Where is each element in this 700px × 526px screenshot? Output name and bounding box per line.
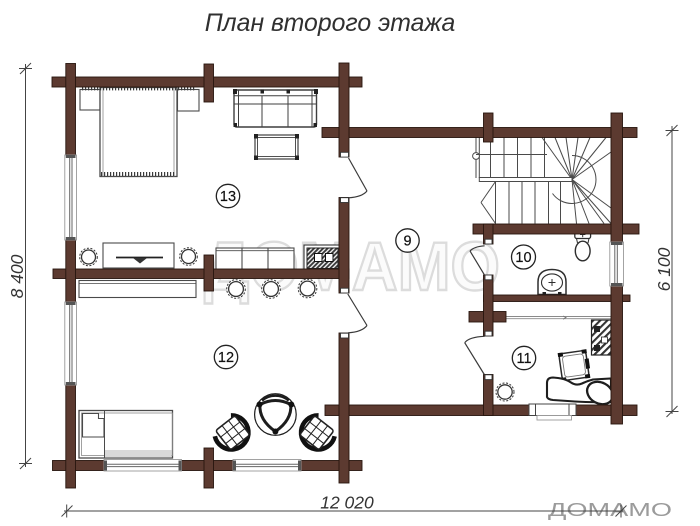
svg-text:12: 12 [218,350,234,366]
svg-text:9: 9 [403,234,411,250]
svg-text:12 020: 12 020 [320,493,374,513]
svg-text:ДОМАМО: ДОМАМО [548,499,672,520]
svg-text:8 400: 8 400 [7,254,27,298]
svg-text:11: 11 [516,351,531,367]
svg-text:13: 13 [220,189,236,205]
svg-text:План второго этажа: План второго этажа [205,10,456,37]
svg-text:6 100: 6 100 [654,247,674,291]
svg-text:10: 10 [515,250,531,266]
